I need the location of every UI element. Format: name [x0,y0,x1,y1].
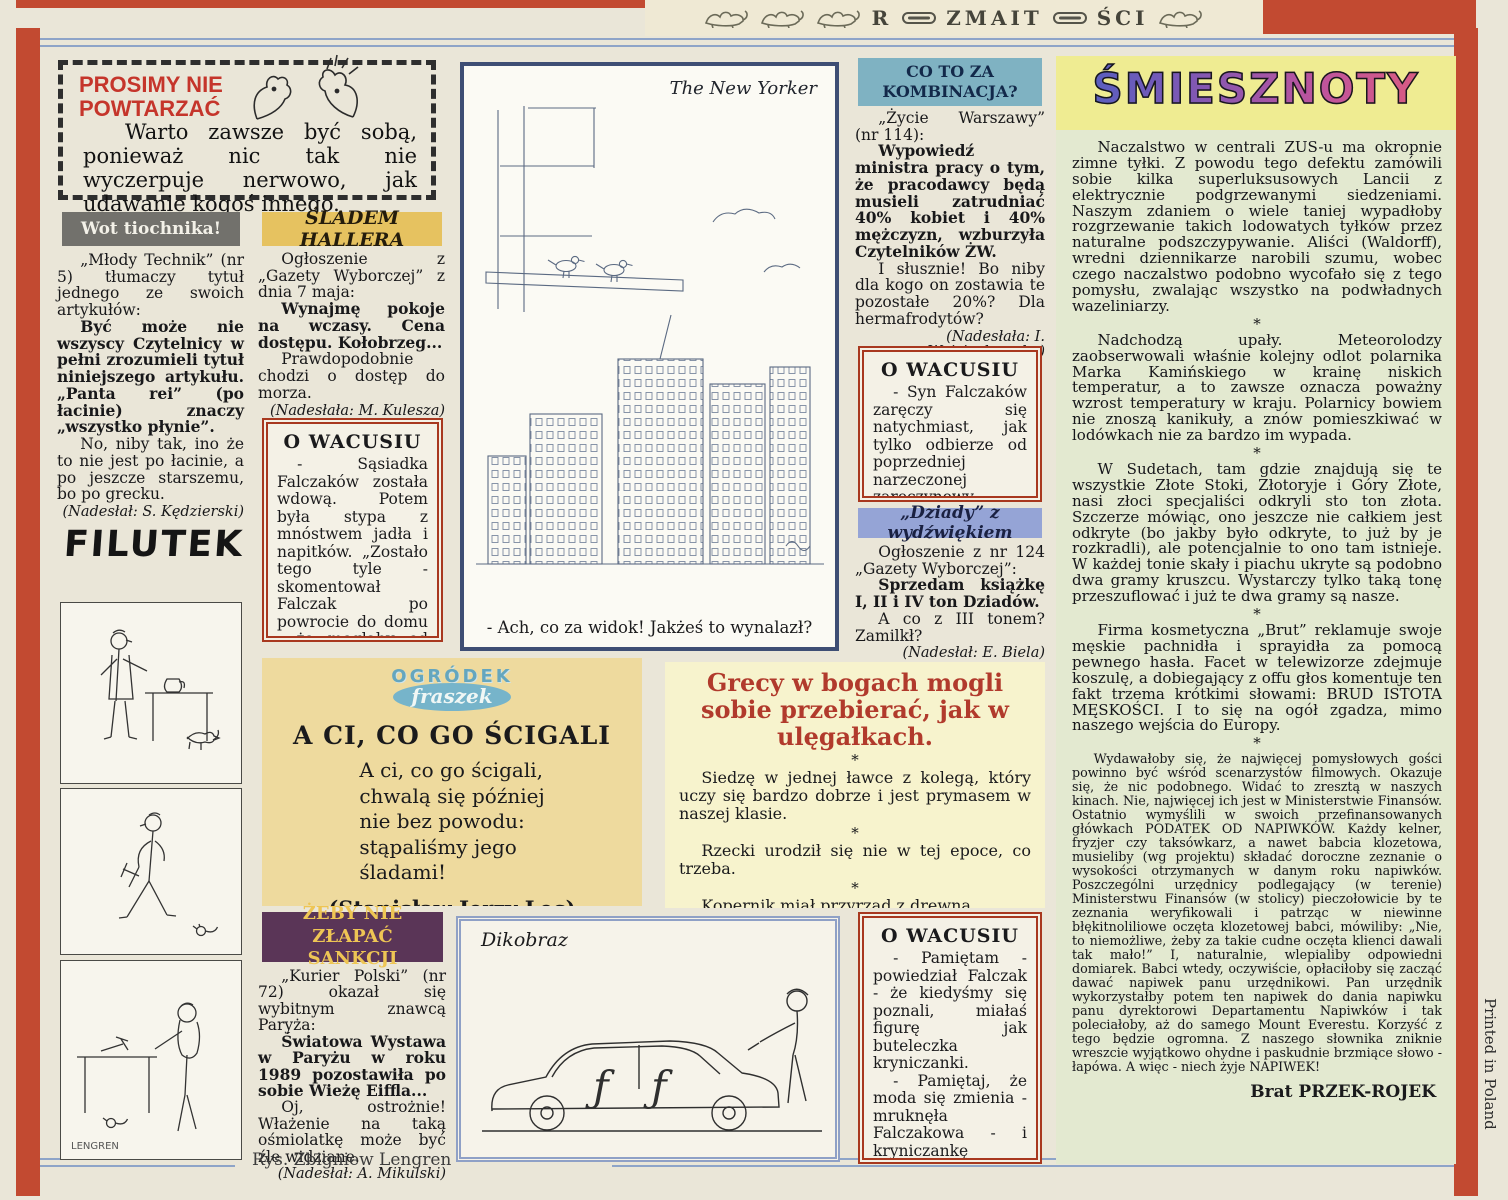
ogrodek-logo-line2: fraszek [393,683,510,711]
sladem-intro: Ogłoszenie z „Gazety Wyborczej” z dnia 7… [258,251,445,301]
smiesznoty-item: W Sudetach, tam gdzie znajdują się te ws… [1072,462,1442,605]
dziady-credit: (Nadesłał: E. Biela) [855,644,1045,662]
cotoza-header-line2: KOMBINACJA? [882,82,1017,102]
zeby-quote: Światowa Wystawa w Paryżu w roku 1989 po… [258,1034,446,1100]
humor-item: Siedzę w jednej ławce z kolegą, który uc… [679,769,1031,824]
two-faces-doodle-icon [241,49,371,131]
co-to-za-kombinacja-header: CO TO ZA KOMBINACJA? [858,58,1042,106]
newyorker-caption: - Ach, co za widok! Jakżeś to wynalazł? [464,618,835,637]
humor-heading: Grecy w bogach mogli sobie przebierać, j… [679,670,1031,751]
dikobraz-drawing-icon: ƒ ƒ [467,949,835,1161]
dziady-comment: A co z III tonem? Zamilkł? [855,611,1045,644]
svg-text:ƒ: ƒ [643,1062,673,1111]
wot-comment: No, niby tak, ino że to nie jest po łaci… [57,436,244,503]
dikobraz-label: Dikobraz [481,929,568,951]
lion-doodle-icon [1158,8,1204,28]
smiesznoty-item: Firma kosmetyczna „Brut” reklamuje swoje… [1072,623,1442,734]
asterisk-separator: * [1072,737,1442,749]
dziady-quote: Sprzedam książkę I, II i IV ton Dziadów. [855,577,1045,610]
prosimy-box: PROSIMY NIE POWTARZAĆ Warto zawsze być s… [58,60,436,200]
cotoza-comment: I słusznie! Bo niby dla kogo on zostawia… [855,261,1045,328]
o-wacusiu-1-title: O WACUSIU [277,431,428,453]
humor-item: Rzecki urodził się nie w tej epoce, co t… [679,842,1031,879]
o-wacusiu-box-1: O WACUSIU - Sąsiadka Falczaków została w… [262,418,443,642]
lion-doodle-icon [760,8,806,28]
sausage-icon [1053,10,1087,26]
masthead-letters-sci: ŚCI [1097,6,1149,30]
zeby-intro: „Kurier Polski” (nr 72) okazał się wybit… [258,968,446,1034]
asterisk-separator: * [679,827,1031,839]
sladem-quote: Wynajmę pokoje na wczasy. Cena dostępu. … [258,301,445,351]
humor-item: Kopernik miał przyrząd z drewna. [679,897,1031,908]
zeby-header-line1: ŻEBY NIE ZŁAPAĆ [262,903,443,948]
sausage-icon [902,10,936,26]
page-frame-right [1454,28,1478,1196]
masthead-letters-zmait: ZMAIT [946,6,1043,30]
o-wacusiu-2-text: - Syn Falczaków zaręczy się natychmiast,… [873,384,1027,502]
smiesznoty-item: Nadchodzą upały. Meteorolodzy zaobserwow… [1072,333,1442,444]
asterisk-separator: * [1072,447,1442,459]
wot-intro: „Młody Technik” (nr 5) tłumaczy tytuł je… [57,252,244,319]
ogrodek-fraszek-box: OGRÓDEK fraszek A CI, CO GO ŚCIGALI A ci… [262,658,642,906]
o-wacusiu-1-text: - Sąsiadka Falczaków została wdową. Pote… [277,456,428,642]
zeby-header: ŻEBY NIE ZŁAPAĆ SANKCJI [262,912,443,962]
o-wacusiu-3-title: O WACUSIU [873,925,1027,947]
o-wacusiu-2-title: O WACUSIU [873,359,1027,381]
dikobraz-cartoon-box: Dikobraz ƒ ƒ [456,916,840,1162]
asterisk-separator: * [679,754,1031,766]
asterisk-separator: * [1072,608,1442,620]
top-rule [40,38,1454,47]
svg-text:ƒ: ƒ [585,1062,615,1111]
printed-in-poland-note: Printed in Poland [1481,998,1499,1130]
newspaper-page: R ZMAIT ŚCI PROSIMY NIE POWTARZAĆ Warto … [0,0,1508,1200]
sladem-hallera-header: ŚLADEM HALLERA [262,212,442,246]
fraszka-poem: A ci, co go ścigali, chwalą się później … [359,758,544,886]
filutek-panel-3-drawing-icon: LENGREN [61,961,239,1157]
smiesznoty-item: Naczalstwo w centrali ZUS-u ma okropnie … [1072,140,1442,315]
smiesznoty-title: ŚMIESZNOTY [1056,64,1456,113]
artist-credit: Rys. Zbigniew Lengren [252,1150,451,1170]
wot-tiochnika-text: „Młody Technik” (nr 5) tłumaczy tytuł je… [57,252,244,521]
prosimy-title-line2: POWTARZAĆ [79,97,223,121]
newyorker-cartoon-box: The New Yorker [460,62,839,651]
filutek-signature: LENGREN [71,1141,119,1152]
lion-doodle-icon [816,8,862,28]
newyorker-drawing-icon [468,104,833,608]
o-wacusiu-3-para1: - Pamiętam - powiedział Falczak - że kie… [873,950,1027,1073]
filutek-panel-2-drawing-icon [61,789,239,952]
dziady-header: „Dziady” z wydźwiękiem [858,508,1042,538]
co-to-za-kombinacja-text: „Życie Warszawy” (nr 114): Wypowiedź min… [855,110,1045,361]
filutek-panel-2 [60,788,242,955]
filutek-panel-1 [60,602,242,784]
newyorker-label: The New Yorker [670,78,817,99]
page-frame-top-right [1263,0,1476,34]
cotoza-quote: Wypowiedź ministra pracy o tym, że praco… [855,143,1045,260]
prosimy-title: PROSIMY NIE POWTARZAĆ [79,73,223,121]
masthead-letters-r: R [872,6,893,30]
o-wacusiu-box-2: O WACUSIU - Syn Falczaków zaręczy się na… [858,346,1042,502]
o-wacusiu-3-para2: - Pamiętaj, że moda się zmienia - mruknę… [873,1073,1027,1165]
filutek-panel-1-drawing-icon [61,603,239,781]
dziady-text: Ogłoszenie z nr 124 „Gazety Wyborczej”: … [855,544,1045,662]
cotoza-intro: „Życie Warszawy” (nr 114): [855,110,1045,143]
lion-doodle-icon [704,8,750,28]
filutek-logo: FILUTEK [55,524,254,565]
smiesznoty-column: ŚMIESZNOTY Naczalstwo w centrali ZUS-u m… [1056,56,1456,1164]
masthead: R ZMAIT ŚCI [645,0,1263,36]
asterisk-separator: * [679,882,1031,894]
wot-credit: (Nadesłał: S. Kędzierski) [57,503,244,521]
prosimy-text: Warto zawsze być sobą, ponieważ nic tak … [83,121,417,217]
humor-zeszytow-box: Grecy w bogach mogli sobie przebierać, j… [665,662,1045,908]
smiesznoty-body: Naczalstwo w centrali ZUS-u ma okropnie … [1072,140,1442,1102]
dziady-intro: Ogłoszenie z nr 124 „Gazety Wyborczej”: [855,544,1045,577]
cotoza-header-line1: CO TO ZA [906,62,994,82]
smiesznoty-item: Wydawałoby się, że najwięcej pomysłowych… [1072,752,1442,1073]
wot-quote: Być może nie wszyscy Czytelnicy w pełni … [57,319,244,436]
wot-tiochnika-header: Wot tiochnika! [62,212,240,246]
fraszka-title: A CI, CO GO ŚCIGALI [282,721,622,750]
ogrodek-logo: OGRÓDEK fraszek [282,666,622,711]
page-frame-top [16,0,645,8]
asterisk-separator: * [1072,318,1442,330]
filutek-panel-3: LENGREN [60,960,242,1160]
sladem-hallera-text: Ogłoszenie z „Gazety Wyborczej” z dnia 7… [258,251,445,419]
smiesznoty-signature: Brat PRZEK-ROJEK [1072,1082,1442,1102]
prosimy-title-line1: PROSIMY NIE [79,73,223,97]
sladem-credit: (Nadesłała: M. Kulesza) [258,402,445,420]
page-frame-left [16,28,40,1196]
sladem-comment: Prawdopodobnie chodzi o dostęp do morza. [258,351,445,401]
o-wacusiu-box-3: O WACUSIU - Pamiętam - powiedział Falcza… [858,912,1042,1164]
